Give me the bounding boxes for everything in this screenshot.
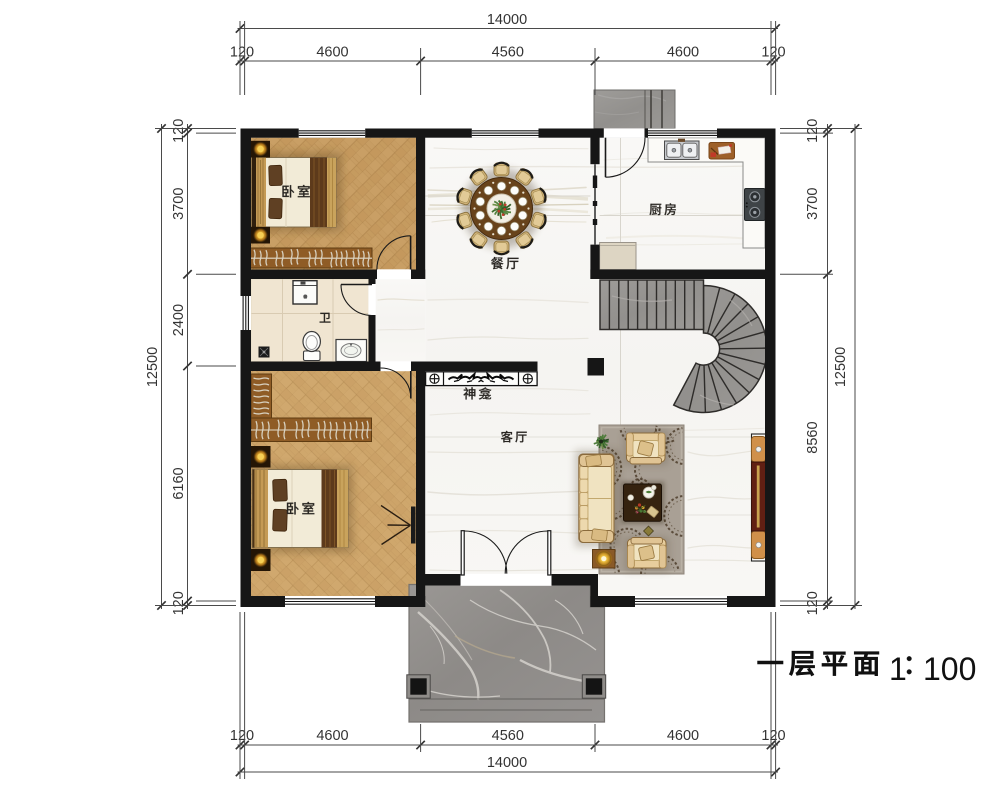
svg-text:4600: 4600 [316, 728, 348, 744]
svg-text:14000: 14000 [487, 755, 527, 771]
svg-text:4560: 4560 [492, 728, 524, 744]
svg-text:4600: 4600 [667, 45, 699, 61]
svg-text:120: 120 [171, 119, 187, 143]
svg-text:120: 120 [761, 45, 785, 61]
svg-text:120: 120 [230, 45, 254, 61]
svg-text:4560: 4560 [492, 45, 524, 61]
svg-text:4600: 4600 [667, 728, 699, 744]
svg-text:12500: 12500 [145, 347, 161, 387]
svg-text:120: 120 [805, 591, 821, 615]
svg-text:100: 100 [923, 651, 976, 687]
svg-text:120: 120 [805, 119, 821, 143]
svg-text:120: 120 [171, 591, 187, 615]
svg-text:14000: 14000 [487, 12, 527, 28]
svg-text:120: 120 [761, 728, 785, 744]
svg-text:2400: 2400 [171, 304, 187, 336]
svg-text:6160: 6160 [171, 467, 187, 499]
svg-text:1: 1 [889, 651, 907, 687]
svg-text:12500: 12500 [833, 347, 849, 387]
svg-text:3700: 3700 [171, 188, 187, 220]
svg-text:120: 120 [230, 728, 254, 744]
svg-text:4600: 4600 [316, 45, 348, 61]
svg-text:3700: 3700 [805, 188, 821, 220]
svg-text:8560: 8560 [805, 421, 821, 453]
